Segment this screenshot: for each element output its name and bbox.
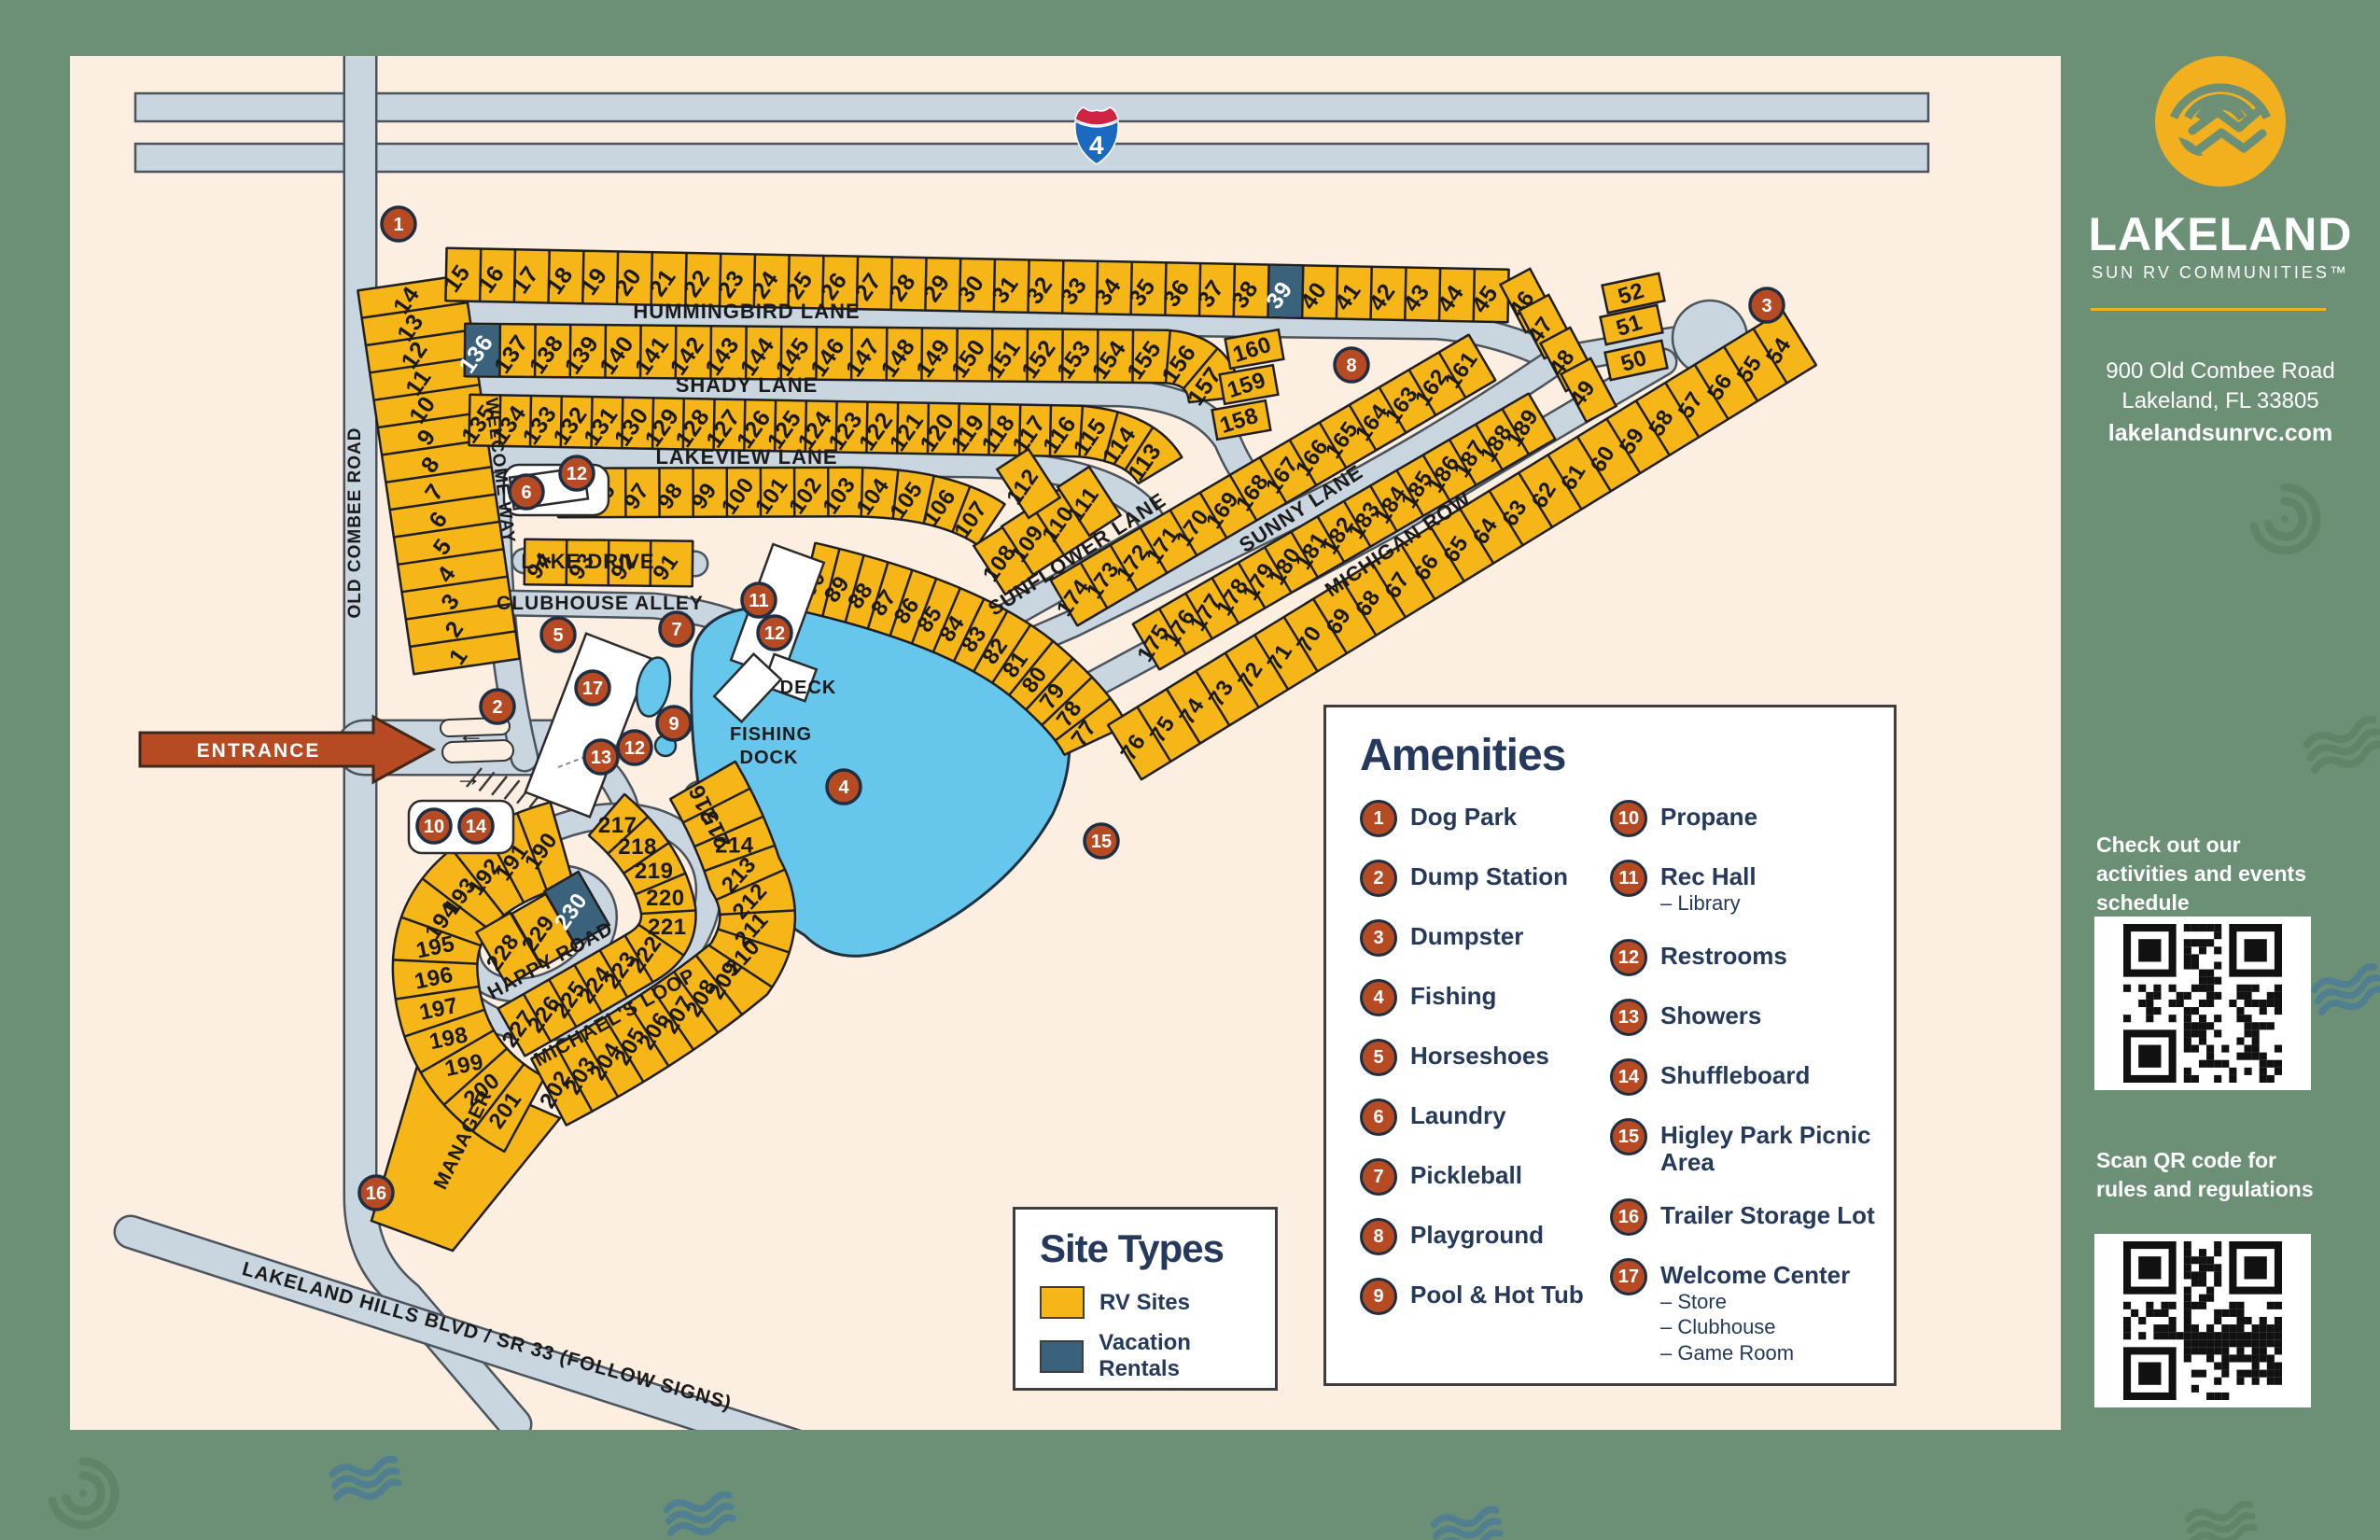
amenity-item-7: 7Pickleball: [1360, 1158, 1610, 1196]
amenity-number-badge: 14: [1610, 1058, 1647, 1096]
svg-text:17: 17: [582, 679, 603, 699]
amenity-label: Dumpster: [1410, 919, 1523, 950]
amenity-label: Playground: [1410, 1218, 1544, 1249]
svg-text:2: 2: [492, 697, 502, 718]
amenity-number-badge: 3: [1360, 919, 1397, 957]
svg-text:14: 14: [466, 817, 487, 837]
amenity-item-14: 14Shuffleboard: [1610, 1058, 1890, 1096]
amenity-marker-12: 12: [758, 616, 791, 650]
amenity-number-badge: 16: [1610, 1198, 1647, 1236]
amenity-item-17: 17Welcome Center– Store– Clubhouse– Game…: [1610, 1258, 1890, 1366]
amenity-marker-10: 10: [417, 809, 451, 843]
amenity-number-badge: 17: [1610, 1258, 1647, 1295]
amenity-marker-6: 6: [510, 475, 543, 509]
sidebar-divider: [2091, 308, 2326, 311]
amenity-label: Welcome Center– Store– Clubhouse– Game R…: [1660, 1258, 1850, 1366]
street-label: CLUBHOUSE ALLEY: [497, 593, 704, 614]
amenity-marker-1: 1: [382, 207, 415, 241]
svg-text:9: 9: [668, 714, 679, 735]
street-label: SHADY LANE: [676, 373, 819, 397]
amenity-label: Dog Park: [1410, 800, 1517, 831]
amenity-marker-12: 12: [560, 456, 594, 490]
site-type-item: RV Sites: [1040, 1286, 1275, 1319]
amenity-number-badge: 5: [1360, 1039, 1397, 1076]
sidebar: LAKELAND SUN RV COMMUNITIES™ 900 Old Com…: [2061, 0, 2380, 1540]
amenity-label: Horseshoes: [1410, 1039, 1549, 1070]
amenity-label: Pickleball: [1410, 1158, 1522, 1189]
amenities-column: 1Dog Park2Dump Station3Dumpster4Fishing5…: [1360, 800, 1610, 1388]
amenity-marker-5: 5: [541, 618, 575, 651]
street-label: DECK: [780, 678, 837, 698]
amenity-number-badge: 12: [1610, 939, 1647, 976]
amenity-label: Higley Park Picnic Area: [1660, 1118, 1890, 1176]
site-types-title: Site Types: [1040, 1226, 1275, 1271]
amenities-title: Amenities: [1360, 730, 1894, 781]
svg-text:12: 12: [764, 623, 785, 644]
amenity-marker-17: 17: [576, 671, 609, 705]
amenity-number-badge: 2: [1360, 860, 1397, 897]
svg-text:5: 5: [553, 625, 563, 646]
street-label: DOCK: [740, 748, 799, 768]
amenity-item-16: 16Trailer Storage Lot: [1610, 1198, 1890, 1236]
logo-block: LAKELAND SUN RV COMMUNITIES™: [2061, 51, 2380, 283]
svg-text:3: 3: [1761, 296, 1771, 316]
amenities-columns: 1Dog Park2Dump Station3Dumpster4Fishing5…: [1360, 800, 1894, 1388]
amenity-sublabel: – Store: [1660, 1289, 1850, 1315]
svg-text:10: 10: [424, 817, 444, 837]
amenity-number-badge: 10: [1610, 800, 1647, 837]
site-type-swatch: [1040, 1340, 1084, 1373]
amenity-number-badge: 11: [1610, 860, 1647, 897]
amenity-label: Fishing: [1410, 979, 1496, 1010]
svg-text:←: ←: [457, 719, 486, 749]
amenity-label: Trailer Storage Lot: [1660, 1198, 1875, 1229]
lakeland-sun-rv-map-page: ←→14131211109876543211516171819202122232…: [0, 0, 2380, 1540]
activities-note: Check out our activities and events sche…: [2096, 831, 2330, 917]
amenity-marker-15: 15: [1085, 824, 1118, 858]
amenity-label: Restrooms: [1660, 939, 1787, 970]
amenity-sublabel: – Clubhouse: [1660, 1314, 1850, 1340]
amenity-item-3: 3Dumpster: [1360, 919, 1610, 957]
amenity-item-12: 12Restrooms: [1610, 939, 1890, 976]
amenity-marker-8: 8: [1335, 348, 1368, 382]
website: lakelandsunrvc.com: [2061, 418, 2380, 448]
svg-text:4: 4: [838, 777, 849, 798]
address-block: 900 Old Combee Road Lakeland, FL 33805 l…: [2061, 357, 2380, 448]
entrance-label: ENTRANCE: [197, 740, 321, 762]
amenity-marker-14: 14: [459, 809, 493, 843]
amenity-marker-9: 9: [657, 707, 691, 740]
amenity-item-1: 1Dog Park: [1360, 800, 1610, 837]
activities-qr-code: [2094, 917, 2311, 1090]
site-type-label: RV Sites: [1099, 1290, 1190, 1316]
amenity-label: Pool & Hot Tub: [1410, 1278, 1584, 1309]
svg-text:12: 12: [567, 464, 587, 484]
amenity-label: Rec Hall– Library: [1660, 860, 1757, 917]
amenity-item-5: 5Horseshoes: [1360, 1039, 1610, 1076]
amenity-number-badge: 4: [1360, 979, 1397, 1016]
amenity-label: Dump Station: [1410, 860, 1568, 890]
address-line1: 900 Old Combee Road: [2061, 357, 2380, 386]
amenity-item-8: 8Playground: [1360, 1218, 1610, 1255]
street-label: OLD COMBEE ROAD: [345, 427, 365, 619]
amenity-item-4: 4Fishing: [1360, 979, 1610, 1016]
site-type-label: Vacation Rentals: [1099, 1330, 1275, 1382]
logo-tagline: SUN RV COMMUNITIES™: [2061, 263, 2380, 283]
svg-text:4: 4: [1089, 131, 1104, 160]
lakeland-logo-icon: [2150, 51, 2290, 191]
street-label: HUMMINGBIRD LANE: [633, 300, 860, 323]
svg-text:11: 11: [749, 591, 768, 611]
site-type-item: Vacation Rentals: [1040, 1330, 1275, 1382]
amenity-marker-11: 11: [742, 583, 776, 617]
amenity-number-badge: 8: [1360, 1218, 1397, 1255]
svg-text:15: 15: [1091, 832, 1112, 852]
lot-number: 220: [646, 886, 685, 911]
street-label: LAKEVIEW LANE: [655, 445, 837, 469]
amenity-marker-7: 7: [660, 612, 693, 646]
lot-number: 221: [648, 915, 687, 940]
rules-note: Scan QR code for rules and regulations: [2096, 1146, 2330, 1204]
site-types-rows: RV SitesVacation Rentals: [1040, 1286, 1275, 1382]
svg-text:→: →: [455, 762, 483, 792]
amenity-marker-16: 16: [359, 1176, 393, 1210]
amenity-number-badge: 15: [1610, 1118, 1647, 1155]
svg-text:6: 6: [521, 483, 531, 503]
amenity-label: Shuffleboard: [1660, 1058, 1810, 1089]
amenity-marker-3: 3: [1750, 288, 1784, 322]
amenity-marker-4: 4: [827, 770, 861, 804]
amenity-label: Showers: [1660, 999, 1761, 1029]
amenity-item-9: 9Pool & Hot Tub: [1360, 1278, 1610, 1315]
qr-code-icon: [2123, 924, 2282, 1083]
rules-qr-code: [2094, 1234, 2311, 1407]
amenity-number-badge: 13: [1610, 999, 1647, 1036]
amenity-sublabel: – Library: [1660, 890, 1757, 917]
amenity-label: Laundry: [1410, 1099, 1506, 1129]
street-label: FISHING: [730, 724, 812, 745]
address-line2: Lakeland, FL 33805: [2061, 386, 2380, 416]
amenity-marker-2: 2: [481, 690, 514, 723]
svg-text:16: 16: [366, 1183, 386, 1204]
svg-text:12: 12: [624, 738, 645, 759]
amenity-sublabel: – Game Room: [1660, 1340, 1850, 1366]
svg-text:8: 8: [1346, 356, 1356, 376]
svg-text:7: 7: [671, 620, 681, 640]
amenity-item-6: 6Laundry: [1360, 1099, 1610, 1136]
amenity-item-15: 15Higley Park Picnic Area: [1610, 1118, 1890, 1176]
street-label: LAKE DRIVE: [521, 550, 654, 573]
amenity-number-badge: 7: [1360, 1158, 1397, 1196]
lot-number: 218: [618, 834, 657, 860]
svg-text:1: 1: [393, 215, 403, 235]
amenity-number-badge: 1: [1360, 800, 1397, 837]
amenity-number-badge: 6: [1360, 1099, 1397, 1136]
amenity-marker-13: 13: [584, 740, 618, 774]
amenity-label: Propane: [1660, 800, 1757, 831]
amenity-item-11: 11Rec Hall– Library: [1610, 860, 1890, 917]
svg-text:13: 13: [591, 748, 611, 768]
amenity-number-badge: 9: [1360, 1278, 1397, 1315]
amenities-panel: Amenities 1Dog Park2Dump Station3Dumpste…: [1323, 705, 1897, 1386]
amenity-item-2: 2Dump Station: [1360, 860, 1610, 897]
logo-name: LAKELAND: [2061, 207, 2380, 261]
lot-number: 219: [635, 859, 674, 884]
amenity-item-10: 10Propane: [1610, 800, 1890, 837]
amenity-item-13: 13Showers: [1610, 999, 1890, 1036]
amenity-marker-12: 12: [618, 731, 651, 764]
site-type-swatch: [1040, 1286, 1085, 1319]
site-types-panel: Site Types RV SitesVacation Rentals: [1013, 1207, 1278, 1391]
qr-code-icon: [2123, 1241, 2282, 1400]
amenities-column: 10Propane11Rec Hall– Library12Restrooms1…: [1610, 800, 1890, 1388]
